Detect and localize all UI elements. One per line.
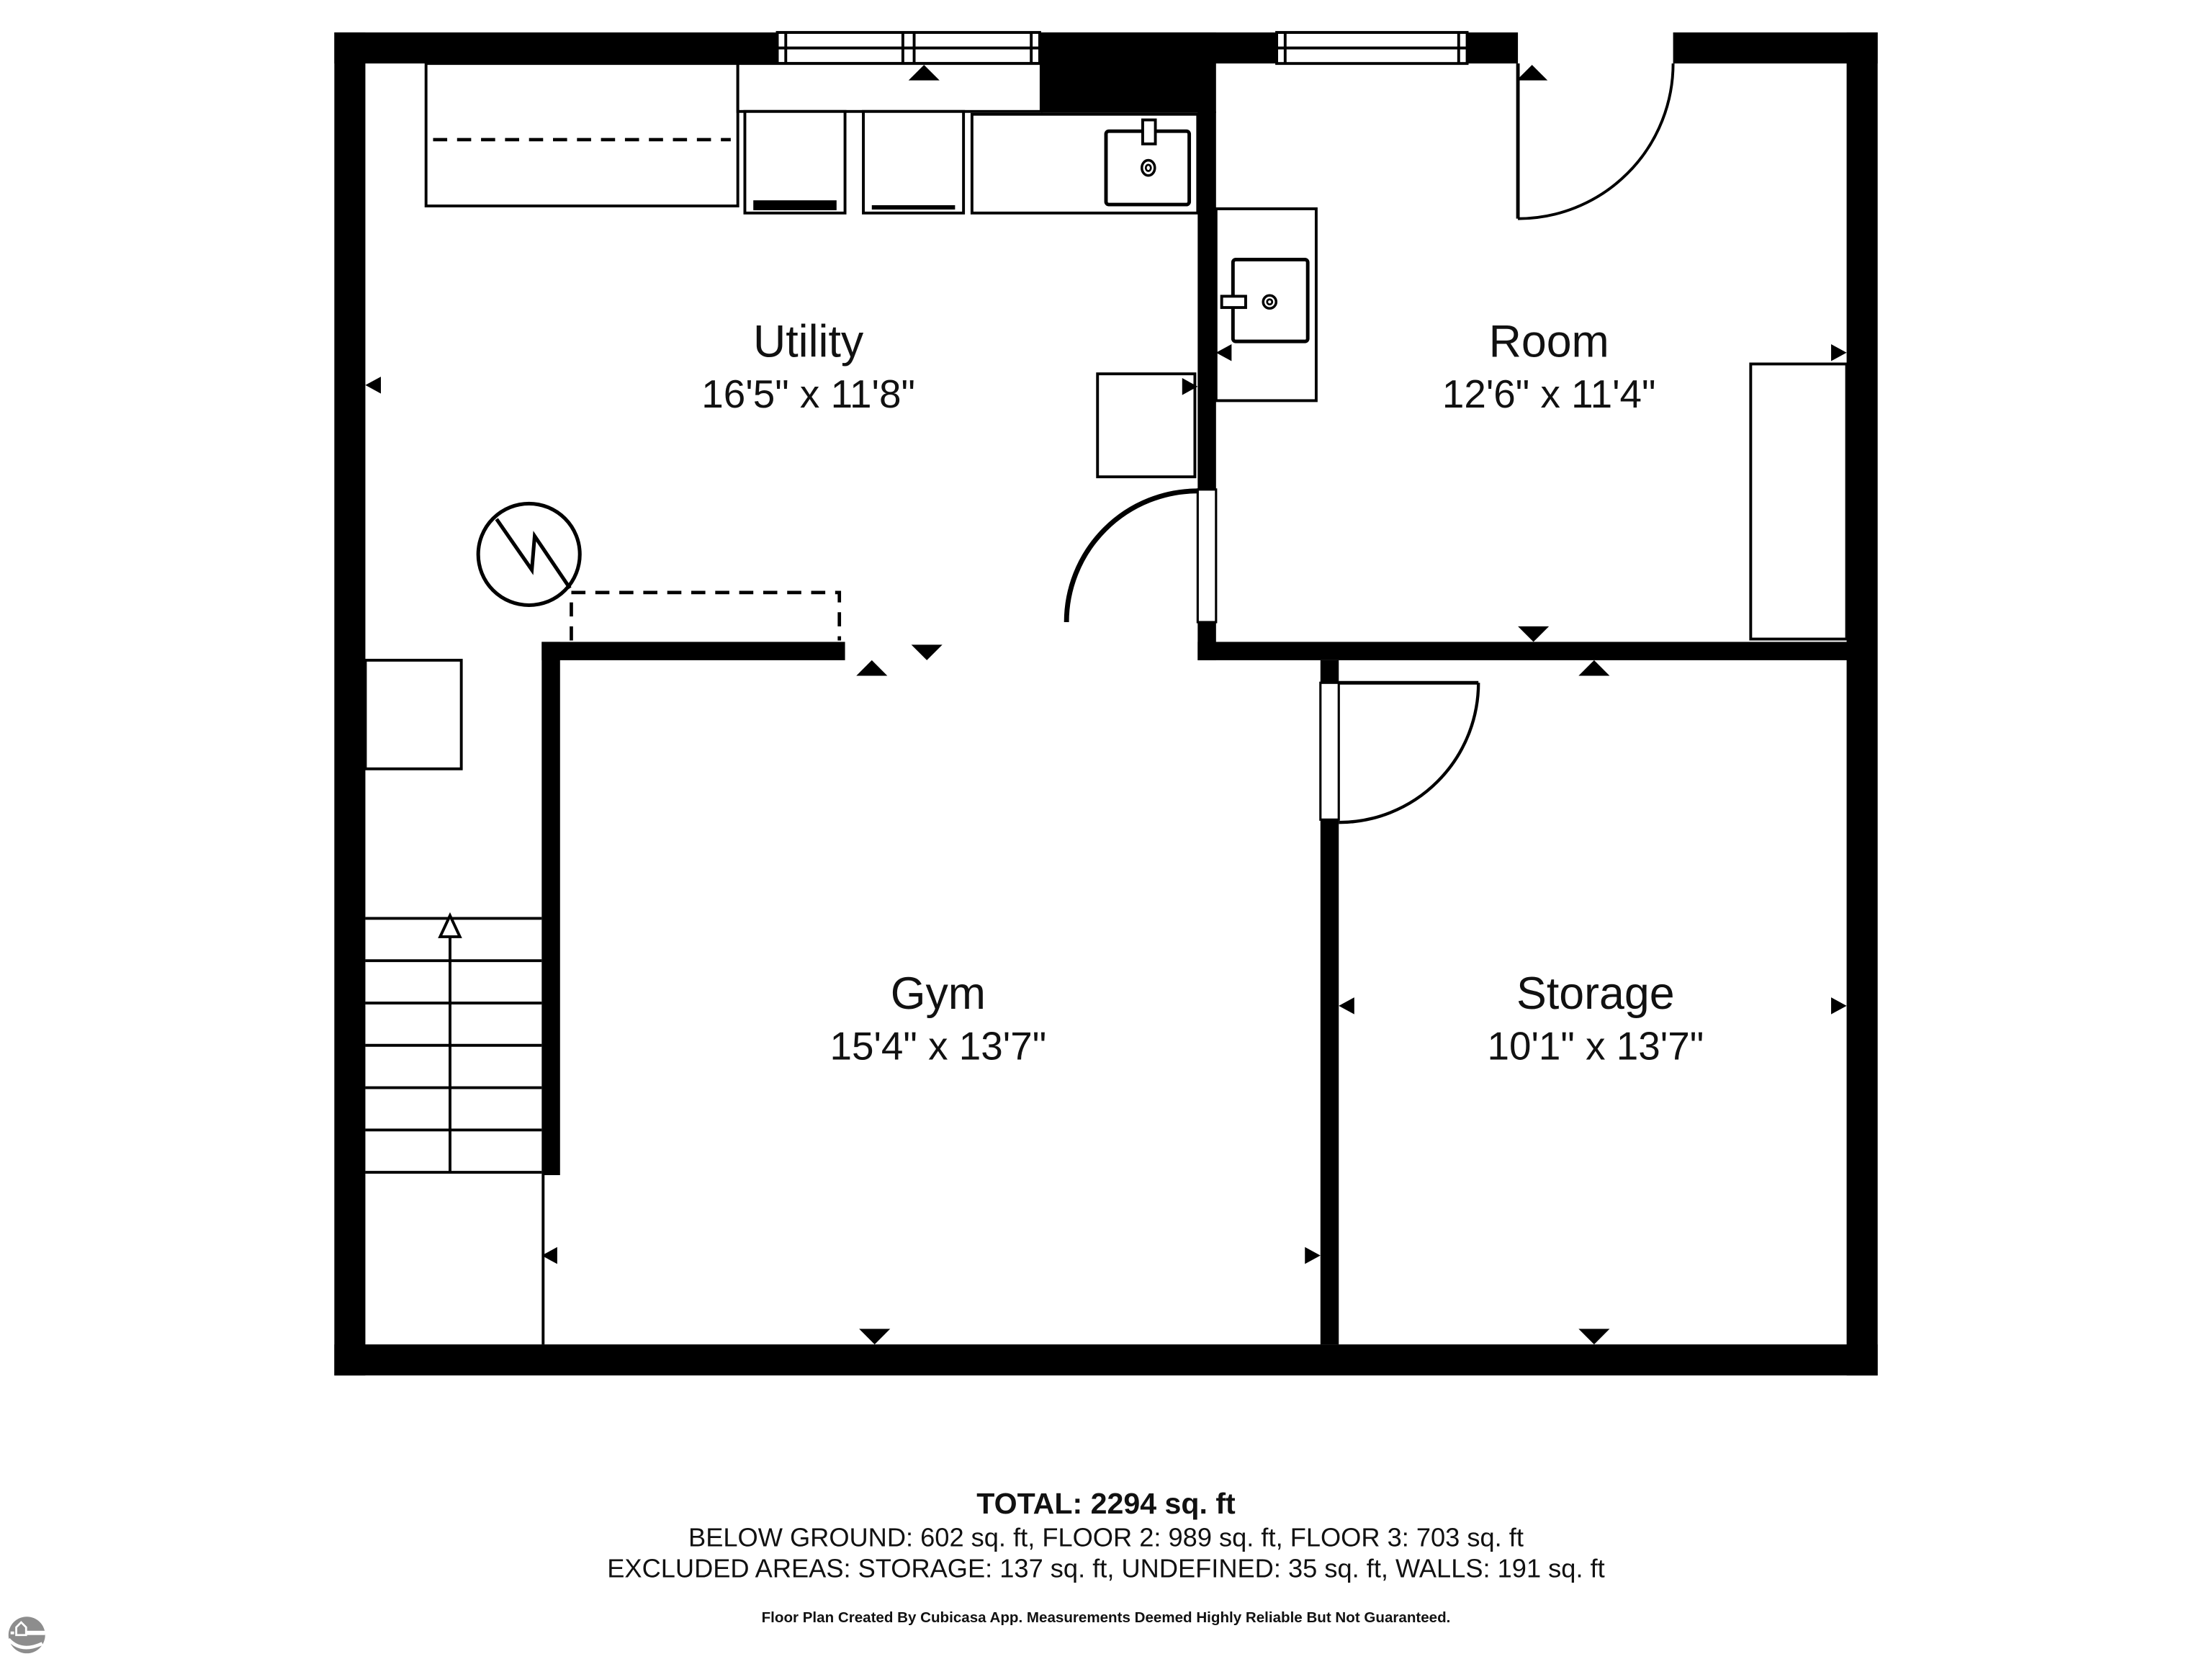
sink-icon <box>972 114 1197 213</box>
sink-icon <box>1216 209 1316 400</box>
dryer-icon <box>863 112 963 213</box>
room-label-gym: Gym 15'4" x 13'7" <box>829 968 1046 1069</box>
closet-icon <box>1750 364 1846 639</box>
water-heater-icon <box>478 503 580 605</box>
exterior-walls <box>334 32 1877 1375</box>
area-summary: TOTAL: 2294 sq. ft BELOW GROUND: 602 sq.… <box>607 1487 1604 1626</box>
total-area-text: TOTAL: 2294 sq. ft <box>976 1487 1236 1520</box>
door-icon <box>1518 63 1673 219</box>
room-label-room: Room 12'6" x 11'4" <box>1442 317 1656 417</box>
room-name: Storage <box>1516 968 1675 1019</box>
disclaimer-text: Floor Plan Created By Cubicasa App. Meas… <box>762 1609 1451 1626</box>
room-label-utility: Utility 16'5" x 11'8" <box>701 317 915 417</box>
stairs-icon <box>365 916 541 1173</box>
room-name: Utility <box>753 317 864 367</box>
window-icon <box>1277 32 1467 63</box>
window-icon <box>778 32 1040 63</box>
appliance-icon <box>1097 374 1195 477</box>
excluded-areas-text: EXCLUDED AREAS: STORAGE: 137 sq. ft, UND… <box>607 1553 1604 1583</box>
door-icon <box>1321 683 1478 822</box>
floor-plan-canvas: Utility 16'5" x 11'8" Room 12'6" x 11'4"… <box>0 0 2212 1659</box>
room-dimensions: 15'4" x 13'7" <box>829 1023 1046 1068</box>
chimney-block <box>1041 32 1216 113</box>
room-name: Room <box>1489 317 1609 367</box>
room-dimensions: 16'5" x 11'8" <box>701 372 915 416</box>
floor-areas-text: BELOW GROUND: 602 sq. ft, FLOOR 2: 989 s… <box>688 1522 1524 1552</box>
room-label-storage: Storage 10'1" x 13'7" <box>1487 968 1704 1069</box>
room-dimensions: 12'6" x 11'4" <box>1442 372 1656 416</box>
measure-arrow-icons <box>365 65 1846 1344</box>
cabinet-icon <box>365 660 461 769</box>
cubicasa-logo-icon <box>9 1617 45 1653</box>
room-dimensions: 10'1" x 13'7" <box>1487 1023 1704 1068</box>
room-name: Gym <box>891 968 986 1019</box>
upper-cabinet-icon <box>571 593 839 641</box>
door-icon <box>1066 490 1216 622</box>
interior-walls <box>541 112 1848 1344</box>
washer-icon <box>745 112 845 213</box>
